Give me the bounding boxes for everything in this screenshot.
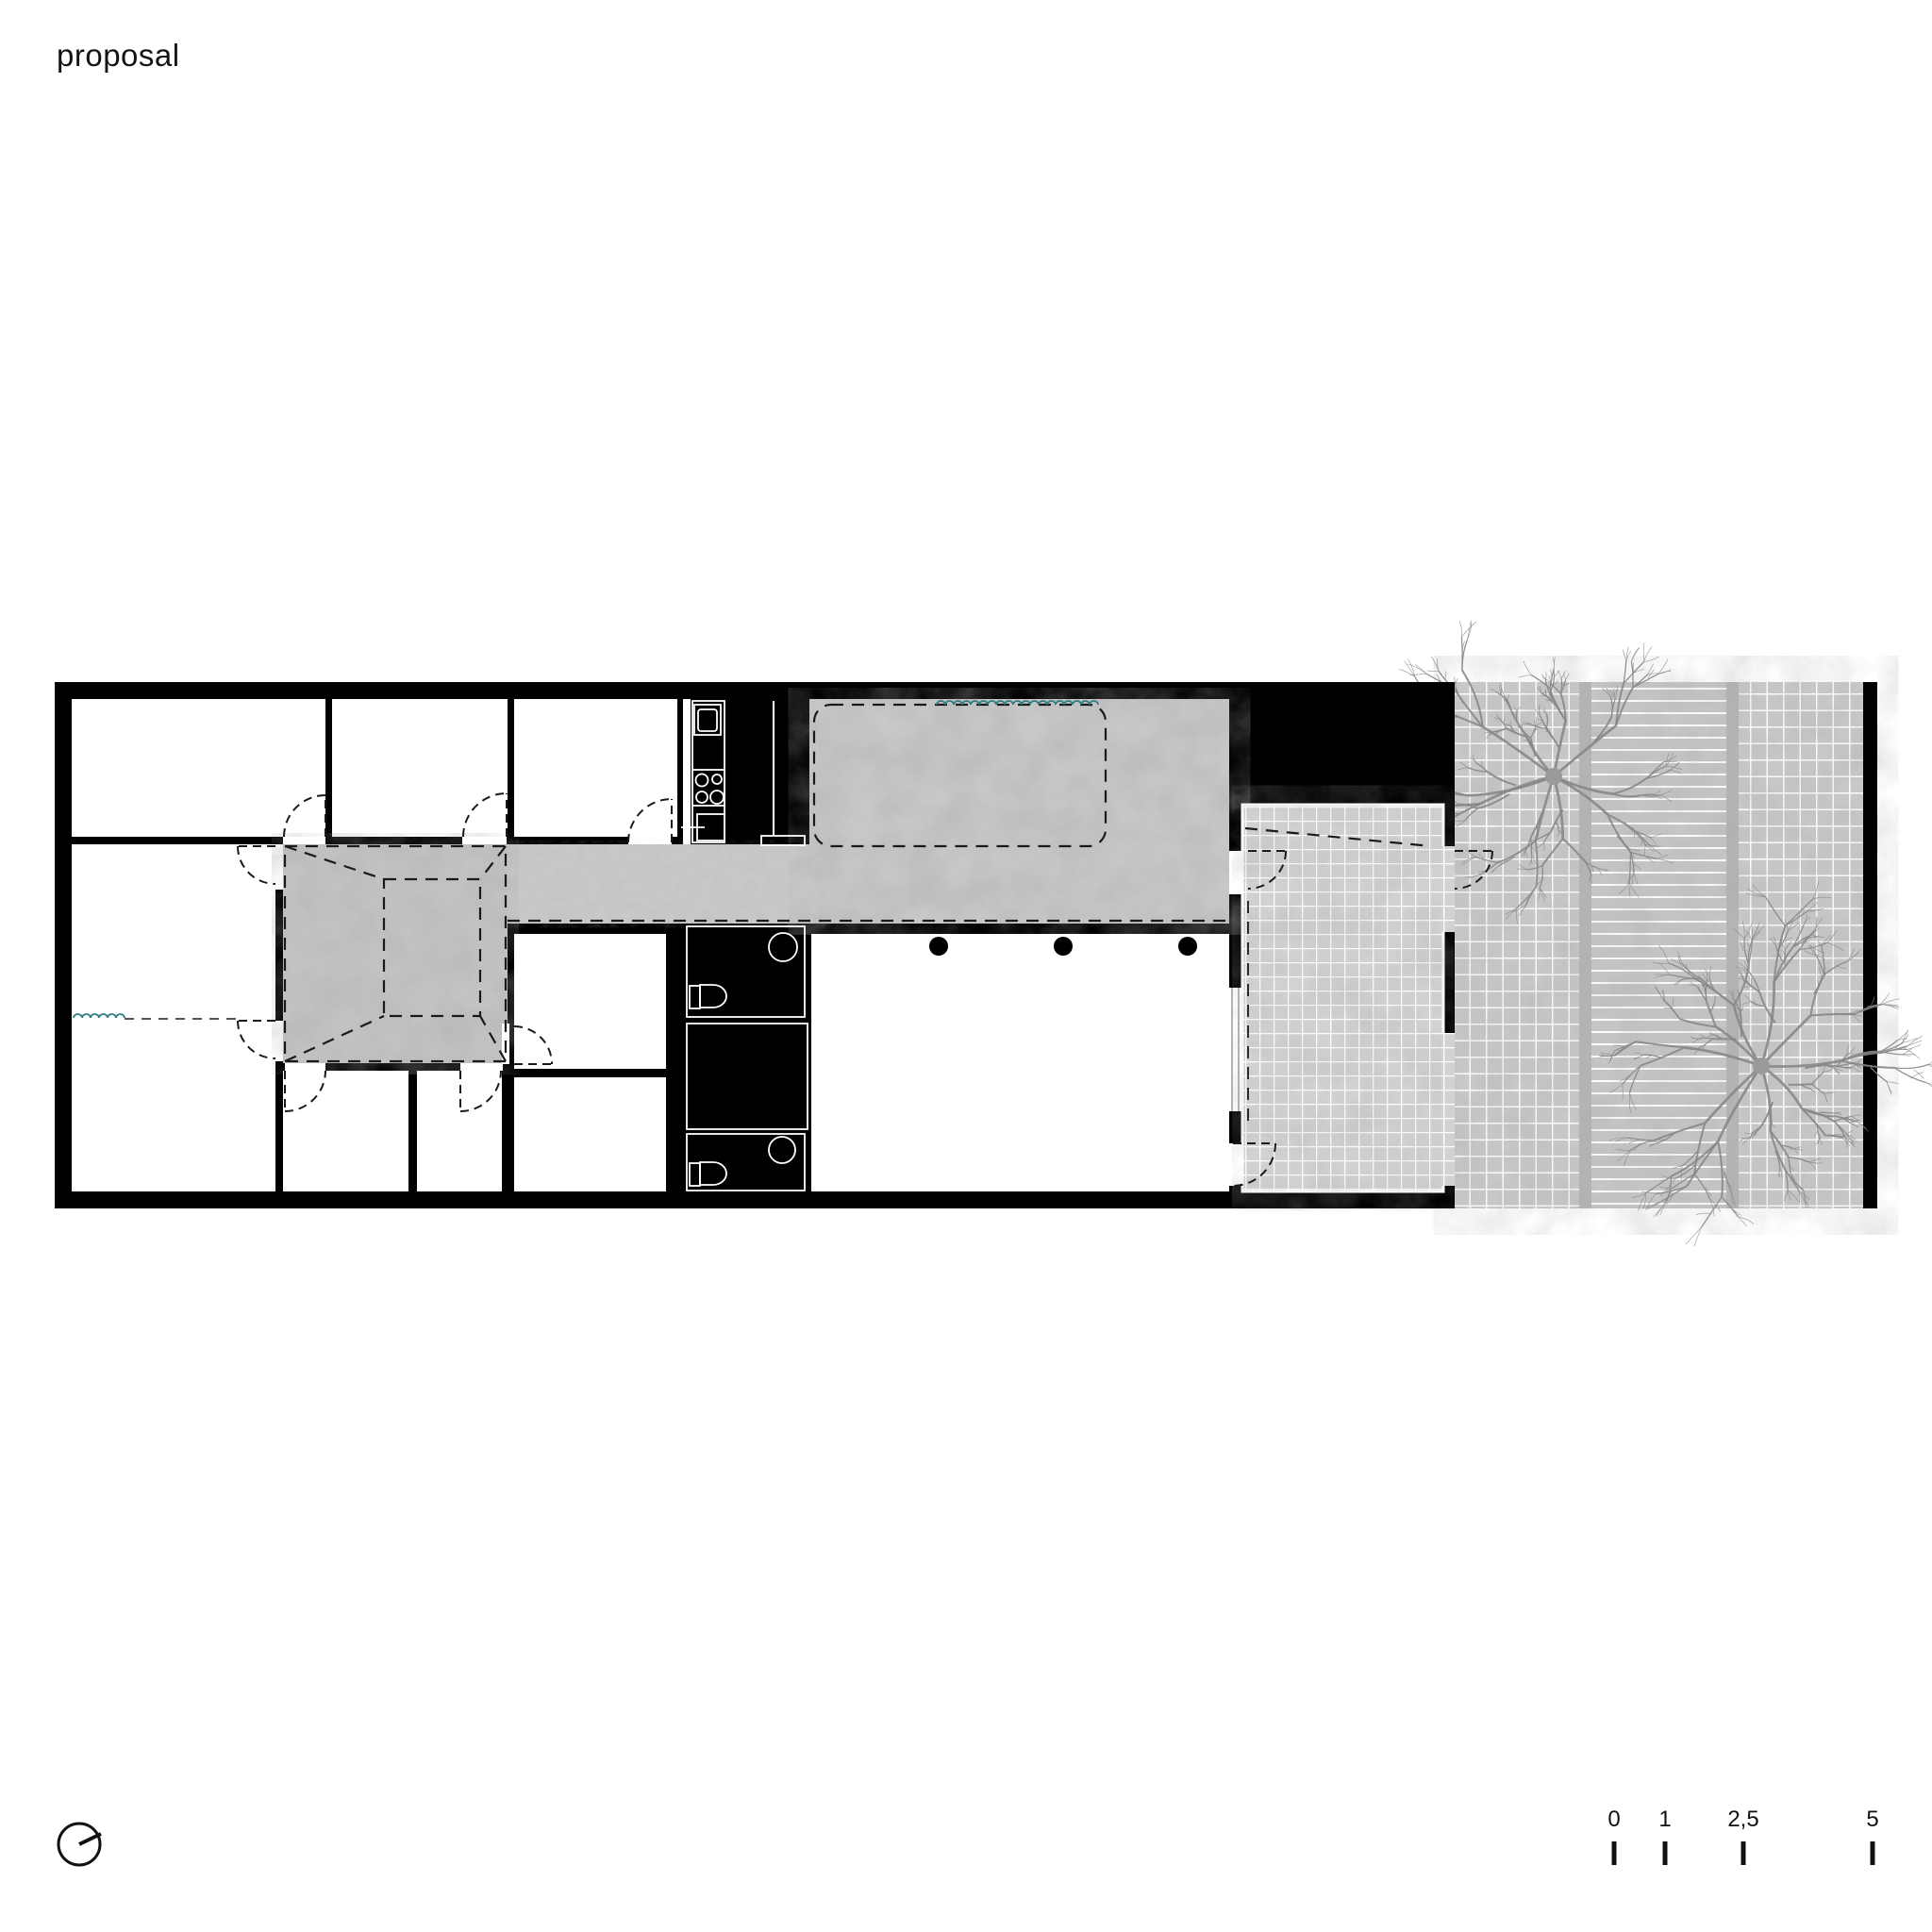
- tree-branch: [1929, 1054, 1932, 1064]
- door-opening: [275, 1021, 283, 1061]
- wall-opening: [1441, 1033, 1455, 1186]
- tree-trunk: [1545, 768, 1562, 785]
- tree-branch: [1881, 993, 1890, 1005]
- tree-branch: [1566, 674, 1570, 680]
- tree-branch: [1551, 670, 1552, 677]
- tree-branch: [1626, 647, 1628, 661]
- door-opening: [628, 837, 672, 844]
- concrete-texture: [508, 844, 809, 924]
- tree-branch: [1410, 674, 1427, 675]
- building: [55, 682, 1492, 1208]
- scale-bar: 012,55: [1607, 1807, 1878, 1865]
- tree-branch: [1524, 661, 1531, 675]
- column-dot: [1054, 937, 1073, 956]
- tree-branch: [1895, 1064, 1929, 1068]
- tree-branch: [1624, 660, 1626, 683]
- floor-plan-drawing: 012,55: [0, 0, 1932, 1932]
- tree-branch: [1519, 675, 1532, 677]
- kitchen-passage: [683, 699, 691, 844]
- scale-label: 5: [1866, 1807, 1878, 1832]
- door-opening: [460, 1063, 503, 1071]
- tree-branch: [1878, 1075, 1885, 1080]
- tree-branch: [1427, 671, 1440, 672]
- tree-branch: [1624, 650, 1626, 661]
- scale-label: 1: [1658, 1807, 1671, 1832]
- tree-branch: [1887, 1082, 1891, 1095]
- room-west-bedroom: [72, 844, 275, 1191]
- tree-branch: [1459, 621, 1461, 637]
- scale-label: 0: [1607, 1807, 1620, 1832]
- north-compass-icon: [58, 1824, 101, 1865]
- tree-branch: [1461, 637, 1462, 670]
- door-opening: [283, 837, 325, 844]
- scale-tick: [1612, 1841, 1617, 1865]
- room-center-2: [514, 1077, 666, 1191]
- door-opening: [285, 1063, 325, 1071]
- tree-branch: [1545, 673, 1546, 680]
- door-opening: [275, 844, 283, 890]
- room-bedroom-2: [332, 699, 508, 837]
- room-bedroom-1: [72, 699, 325, 837]
- tree-branch: [1631, 647, 1640, 661]
- garden-texture: [1455, 682, 1877, 1208]
- column-dot: [929, 937, 948, 956]
- tree-branch: [1431, 657, 1439, 672]
- tree-branch: [1902, 1055, 1911, 1056]
- garden-boundary-wall: [1863, 682, 1877, 1208]
- tree-branch: [1554, 671, 1559, 677]
- tree-branch: [1644, 657, 1659, 662]
- scale-tick: [1741, 1841, 1746, 1865]
- door-opening: [462, 837, 507, 844]
- tree-branch: [1887, 1082, 1898, 1084]
- tree-trunk: [1753, 1058, 1770, 1074]
- tree-branch: [1644, 647, 1653, 662]
- tree-branch: [1929, 1064, 1932, 1074]
- scale-label: 2,5: [1727, 1807, 1758, 1832]
- tree-branch: [1789, 1084, 1812, 1085]
- room-bedroom-3: [514, 699, 677, 837]
- patio: [1242, 805, 1443, 1191]
- scale-tick: [1871, 1841, 1875, 1865]
- room-living: [811, 934, 1229, 1191]
- tree-branch: [1740, 998, 1740, 1011]
- tree-branch: [1405, 661, 1415, 677]
- column-dot: [1178, 937, 1197, 956]
- tree-branch: [1895, 1068, 1927, 1083]
- tree-branch: [1415, 664, 1426, 674]
- wall-opening: [1441, 846, 1455, 932]
- tree-branch: [1557, 671, 1561, 678]
- concrete-texture: [283, 844, 508, 1063]
- tree-branch: [1648, 664, 1654, 675]
- room-center-1: [514, 934, 666, 1069]
- tree-branch: [1531, 837, 1532, 855]
- tree-branch: [1694, 1226, 1702, 1246]
- tree-branch: [1913, 1070, 1924, 1079]
- patio-texture: [1242, 805, 1443, 1191]
- scale-tick: [1663, 1841, 1668, 1865]
- room-south-1: [283, 1071, 408, 1191]
- drawing-sheet: proposal: [0, 0, 1932, 1932]
- tree-branch: [1902, 1055, 1916, 1056]
- tree-branch: [1738, 1217, 1754, 1224]
- tree-branch: [1517, 710, 1518, 723]
- tree-branch: [1686, 1226, 1702, 1244]
- tree-branch: [1408, 664, 1427, 675]
- tree-branch: [1834, 1013, 1852, 1014]
- tree-branch: [1554, 658, 1555, 669]
- tree-branch: [1820, 1112, 1834, 1113]
- tree-branch: [1461, 622, 1476, 637]
- concrete-texture: [809, 699, 1229, 924]
- tree-branch: [1696, 1213, 1710, 1215]
